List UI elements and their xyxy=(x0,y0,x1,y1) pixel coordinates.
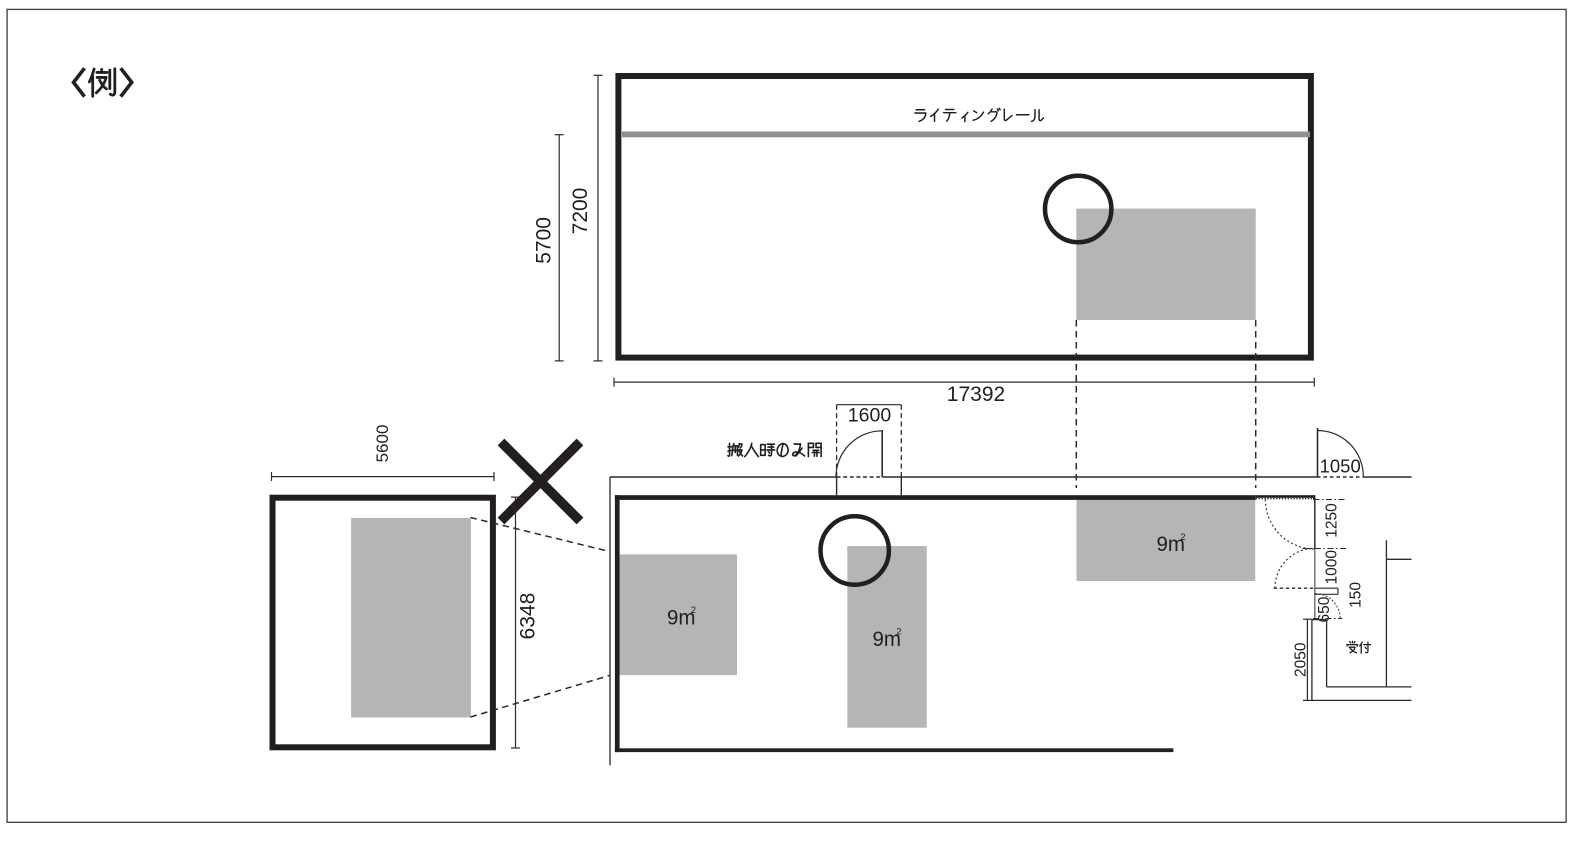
svg-text:2: 2 xyxy=(896,627,901,638)
svg-text:650: 650 xyxy=(1316,596,1333,622)
svg-text:1250: 1250 xyxy=(1323,503,1340,538)
svg-text:2: 2 xyxy=(1180,532,1185,543)
svg-text:5700: 5700 xyxy=(533,217,556,264)
svg-text:17392: 17392 xyxy=(947,383,1005,406)
svg-text:2050: 2050 xyxy=(1292,642,1309,677)
svg-text:150: 150 xyxy=(1348,582,1365,608)
svg-text:7200: 7200 xyxy=(569,188,592,235)
svg-text:6348: 6348 xyxy=(517,593,540,640)
svg-text:1600: 1600 xyxy=(848,404,892,426)
svg-text:2: 2 xyxy=(691,605,696,616)
svg-text:5600: 5600 xyxy=(373,425,392,463)
svg-text:1000: 1000 xyxy=(1323,550,1340,585)
svg-text:1050: 1050 xyxy=(1320,456,1361,477)
